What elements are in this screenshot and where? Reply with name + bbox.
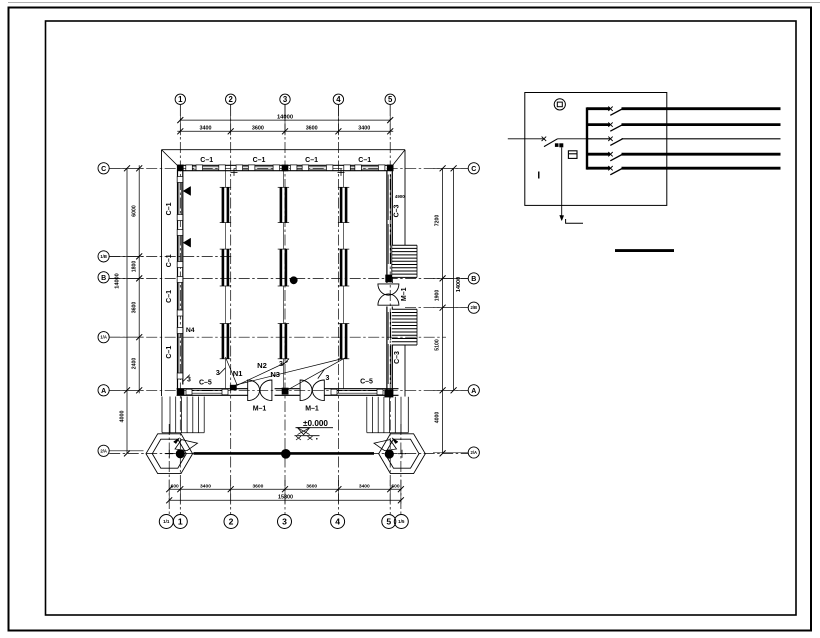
- svg-text:3: 3: [216, 370, 220, 377]
- svg-text:2: 2: [229, 517, 234, 527]
- svg-text:3600: 3600: [252, 126, 264, 132]
- svg-text:C–1: C–1: [166, 290, 173, 303]
- svg-text:C: C: [471, 166, 476, 173]
- svg-text:1900: 1900: [435, 290, 441, 302]
- svg-text:4000: 4000: [435, 412, 441, 424]
- svg-text:C–1: C–1: [305, 157, 318, 164]
- svg-text:C–1: C–1: [166, 254, 173, 267]
- svg-text:B: B: [101, 275, 106, 282]
- svg-text:3400: 3400: [359, 483, 370, 489]
- svg-text:C–3: C–3: [394, 351, 401, 364]
- svg-text:5: 5: [386, 517, 391, 527]
- svg-text:C–1: C–1: [358, 157, 371, 164]
- svg-text:2/A: 2/A: [471, 450, 478, 455]
- svg-text:15800: 15800: [278, 494, 293, 500]
- svg-text:A: A: [471, 388, 476, 395]
- svg-text:1/1: 1/1: [163, 519, 170, 524]
- svg-text:N3: N3: [270, 370, 280, 379]
- svg-text:N2: N2: [257, 361, 267, 370]
- svg-text:4: 4: [336, 95, 341, 104]
- svg-text:3: 3: [279, 361, 283, 368]
- svg-text:1/A: 1/A: [100, 335, 107, 340]
- svg-text:5100: 5100: [435, 339, 441, 351]
- svg-text:3400: 3400: [200, 126, 212, 132]
- svg-text:14000: 14000: [115, 273, 121, 289]
- svg-text:C–5: C–5: [199, 380, 212, 387]
- svg-text:I: I: [537, 171, 540, 182]
- svg-text:3400: 3400: [200, 483, 211, 489]
- svg-text:1: 1: [178, 517, 183, 527]
- svg-text:B: B: [471, 276, 476, 283]
- svg-text:3600: 3600: [306, 483, 317, 489]
- svg-text:3600: 3600: [306, 126, 318, 132]
- svg-text:600: 600: [171, 483, 179, 489]
- svg-text:600: 600: [391, 483, 399, 489]
- svg-text:6000: 6000: [131, 205, 137, 217]
- svg-text:5: 5: [388, 95, 393, 104]
- svg-text:M–1: M–1: [253, 406, 267, 413]
- svg-text:C–1: C–1: [166, 202, 173, 215]
- svg-text:4000: 4000: [120, 411, 126, 423]
- svg-text:A: A: [101, 388, 106, 395]
- svg-text:3600: 3600: [252, 483, 263, 489]
- svg-text:2400: 2400: [131, 358, 137, 370]
- svg-text:3: 3: [326, 375, 330, 382]
- svg-text:C–5: C–5: [360, 379, 373, 386]
- svg-text:C–1: C–1: [200, 157, 213, 164]
- svg-text:4900: 4900: [395, 194, 405, 199]
- svg-text:3600: 3600: [131, 302, 137, 314]
- svg-text:1/B: 1/B: [100, 254, 107, 259]
- svg-text:14000: 14000: [456, 277, 462, 293]
- svg-text:2: 2: [229, 95, 234, 104]
- svg-text:N4: N4: [186, 327, 195, 334]
- svg-text:C: C: [101, 166, 106, 173]
- svg-text:M–1: M–1: [401, 287, 408, 301]
- svg-text:3: 3: [187, 377, 191, 384]
- svg-text:1/5: 1/5: [398, 519, 405, 524]
- svg-text:1: 1: [178, 95, 183, 104]
- svg-text:3: 3: [283, 95, 288, 104]
- svg-text:1800: 1800: [131, 261, 137, 273]
- svg-text:M–1: M–1: [305, 406, 319, 413]
- svg-text:N1: N1: [233, 369, 243, 378]
- svg-text:3400: 3400: [358, 126, 370, 132]
- svg-text:2/B: 2/B: [471, 305, 478, 310]
- svg-text:4: 4: [335, 517, 340, 527]
- svg-text:C–1: C–1: [166, 346, 173, 359]
- svg-text:C–3: C–3: [393, 204, 400, 217]
- svg-text:C–1: C–1: [253, 157, 266, 164]
- svg-text:7200: 7200: [435, 215, 441, 227]
- svg-text:2/A: 2/A: [100, 448, 107, 453]
- svg-text:±0.000: ±0.000: [303, 419, 328, 428]
- svg-text:3: 3: [282, 517, 287, 527]
